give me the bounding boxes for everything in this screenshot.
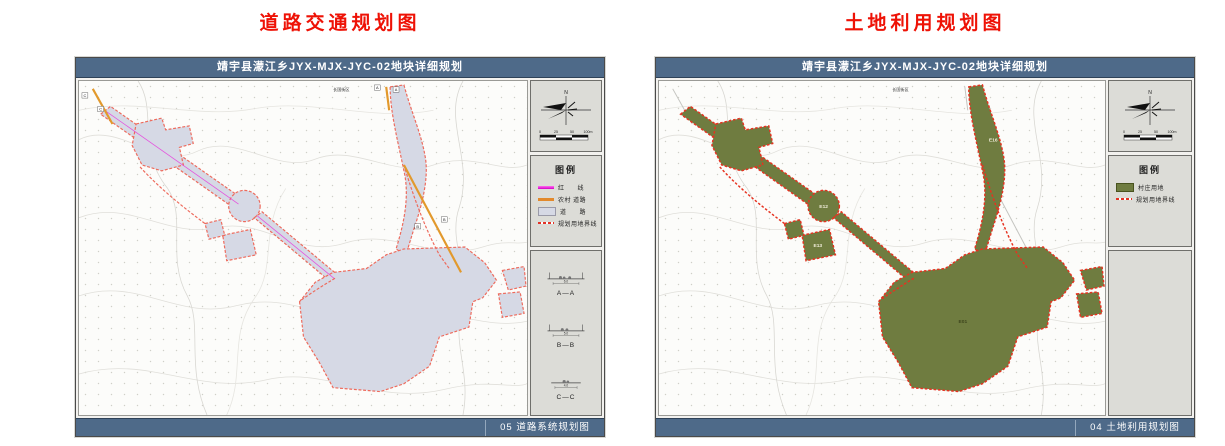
gray-fill-icon: [538, 207, 556, 216]
svg-text:C: C: [99, 107, 102, 112]
road-sections-box: 6.0 A—A 5.0 B—B: [530, 250, 602, 416]
north-arrow-icon: N: [1118, 88, 1182, 128]
svg-text:N: N: [564, 90, 568, 96]
svg-text:25: 25: [1138, 130, 1142, 134]
sheet-title-bar: 靖宇县濛江乡JYX-MJX-JYC-02地块详细规划: [656, 58, 1194, 78]
legend-title: 图例: [1109, 163, 1191, 176]
sheet-body: 长国街区 A A B B C C: [76, 78, 604, 418]
page-title-road-plan: 道路交通规划图: [75, 8, 605, 35]
svg-text:4.0: 4.0: [564, 383, 569, 387]
svg-text:C: C: [83, 93, 86, 98]
legend-item: 村庄用地: [1109, 181, 1191, 193]
svg-text:N: N: [1148, 90, 1152, 96]
svg-text:0: 0: [539, 130, 541, 134]
sheet-number-label: 05 道路系统规划图: [485, 420, 604, 436]
section-diagram-aa: 6.0 A—A: [540, 266, 592, 297]
street-name-label: 长国街区: [333, 86, 350, 92]
svg-text:E12: E12: [819, 204, 828, 210]
sheet-title-bar: 靖宇县濛江乡JYX-MJX-JYC-02地块详细规划: [76, 58, 604, 78]
red-dash-icon: [1116, 198, 1132, 201]
street-name-label: 长国街区: [892, 86, 908, 92]
road-plan-sheet: 靖宇县濛江乡JYX-MJX-JYC-02地块详细规划 长国街区 A: [75, 57, 605, 437]
section-diagram-bb: 5.0 B—B: [540, 318, 592, 349]
north-arrow-icon: N: [534, 88, 598, 128]
compass-scale-box: N 0 25 50 100m: [530, 80, 602, 152]
empty-margin-box: [1108, 250, 1192, 416]
orange-line-icon: [538, 198, 554, 201]
svg-text:A: A: [395, 87, 398, 92]
landuse-plan-sheet: 靖宇县濛江乡JYX-MJX-JYC-02地块详细规划 长国街区 E16 E12 …: [655, 57, 1195, 437]
sheet-footer-bar: 05 道路系统规划图: [76, 418, 604, 436]
scale-bar: 0 25 50 100m: [1118, 128, 1182, 144]
svg-text:25: 25: [554, 130, 558, 134]
legend-title: 图例: [531, 163, 601, 176]
legend-item: 红 线: [531, 181, 601, 193]
scale-bar: 0 25 50 100m: [534, 128, 598, 144]
map-margin-column: N 0 25 50 100m: [1108, 80, 1192, 416]
legend-box: 图例 村庄用地 规划用地界线: [1108, 155, 1192, 247]
legend-item: 农村 道路: [531, 193, 601, 205]
page: 道路交通规划图 土地利用规划图 靖宇县濛江乡JYX-MJX-JYC-02地块详细…: [0, 0, 1225, 446]
red-dash-icon: [538, 222, 554, 225]
svg-text:50: 50: [570, 130, 574, 134]
svg-text:B: B: [416, 224, 419, 229]
road-plots-layer: [101, 85, 526, 392]
landuse-plots-layer: [681, 85, 1104, 392]
green-fill-icon: [1116, 183, 1134, 192]
svg-text:B: B: [443, 217, 446, 222]
sheet-body: 长国街区 E16 E12 E13 E01 N: [656, 78, 1194, 418]
map-margin-column: N 0 25 50 100m: [530, 80, 602, 416]
sheet-number-label: 04 土地利用规划图: [1075, 420, 1194, 436]
magenta-line-icon: [538, 186, 554, 189]
legend-item: 道 路: [531, 205, 601, 217]
sheet-footer-bar: 04 土地利用规划图: [656, 418, 1194, 436]
svg-text:E01: E01: [959, 319, 968, 325]
compass-scale-box: N 0 25 50 100m: [1108, 80, 1192, 152]
svg-text:A: A: [376, 85, 379, 90]
svg-text:E13: E13: [813, 243, 822, 249]
section-diagram-cc: 4.0 C—C: [540, 370, 592, 401]
legend-box: 图例 红 线 农村 道路 道 路 规划用地: [530, 155, 602, 247]
svg-text:5.0: 5.0: [564, 331, 569, 335]
svg-text:0: 0: [1123, 130, 1125, 134]
svg-text:100m: 100m: [1168, 130, 1177, 134]
legend-item: 规划用地界线: [531, 217, 601, 229]
legend-item: 规划用地界线: [1109, 193, 1191, 205]
svg-text:100m: 100m: [584, 130, 593, 134]
landuse-plan-map: 长国街区 E16 E12 E13 E01: [658, 80, 1106, 416]
svg-text:E16: E16: [989, 138, 998, 144]
svg-text:50: 50: [1154, 130, 1158, 134]
road-plan-map: 长国街区 A A B B C C: [78, 80, 528, 416]
svg-text:6.0: 6.0: [564, 279, 569, 283]
page-title-landuse-plan: 土地利用规划图: [655, 8, 1195, 35]
